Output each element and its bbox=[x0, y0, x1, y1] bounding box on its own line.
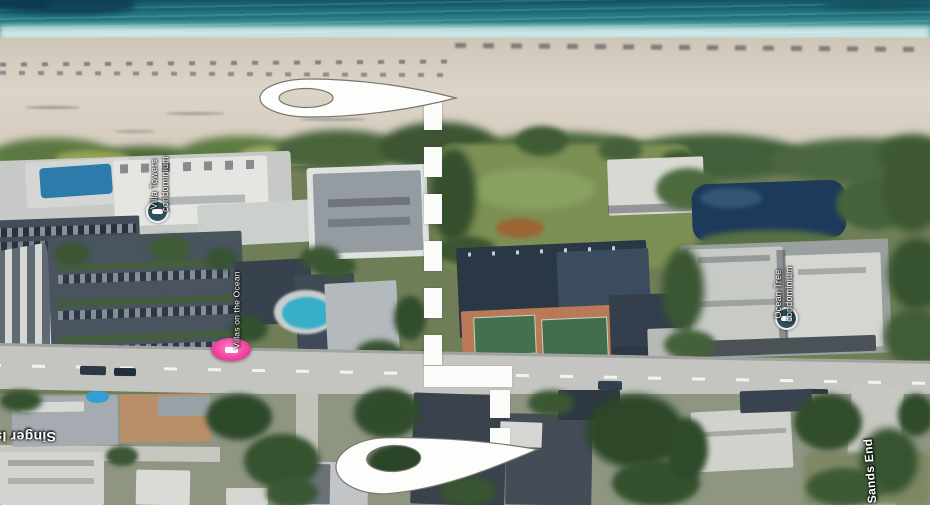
satellite-map[interactable]: Villa Towers condominium Villas on the O… bbox=[0, 0, 930, 505]
label-villas-on-the-ocean[interactable]: Villas on the Ocean bbox=[232, 271, 243, 348]
label-line: Villa Towers bbox=[149, 159, 159, 209]
destination-pin-icon[interactable] bbox=[333, 430, 541, 502]
label-line: condominium bbox=[784, 266, 794, 322]
origin-pin-icon[interactable] bbox=[254, 76, 458, 125]
label-singer-island: Singer Island bbox=[0, 429, 56, 445]
label-line: condominium bbox=[160, 156, 170, 212]
label-line: Villas on the Ocean bbox=[232, 271, 242, 348]
map-terrain bbox=[0, 0, 930, 505]
label-line: Ocean Tree bbox=[773, 269, 783, 318]
street-name: Singer Island bbox=[0, 429, 56, 445]
label-villa-towers[interactable]: Villa Towers condominium bbox=[149, 156, 171, 212]
label-ocean-tree[interactable]: Ocean Tree condominium bbox=[773, 266, 795, 322]
